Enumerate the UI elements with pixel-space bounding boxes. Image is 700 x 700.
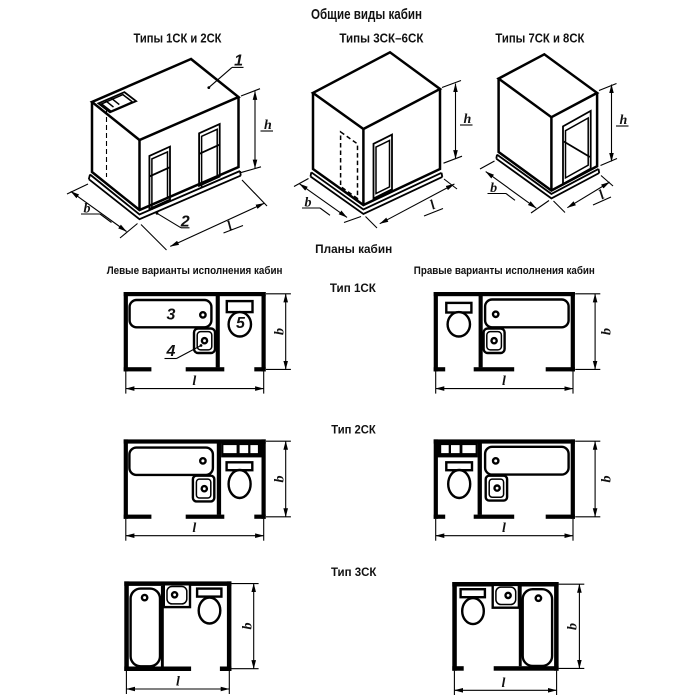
svg-text:b: b — [566, 623, 581, 630]
svg-text:Планы кабин: Планы кабин — [315, 244, 392, 256]
svg-text:b: b — [273, 476, 288, 483]
svg-text:b: b — [273, 328, 288, 335]
svg-text:1: 1 — [234, 52, 243, 69]
svg-text:l: l — [502, 374, 506, 389]
svg-text:b: b — [600, 476, 615, 483]
svg-text:Типы 7СК и 8СК: Типы 7СК и 8СК — [495, 31, 584, 46]
svg-text:Тип 1СК: Тип 1СК — [330, 281, 377, 295]
svg-text:4: 4 — [166, 343, 176, 360]
svg-text:l: l — [502, 676, 506, 691]
svg-text:l: l — [502, 521, 506, 536]
svg-text:Правые варианты исполнения каб: Правые варианты исполнения кабин — [414, 265, 595, 277]
svg-text:3: 3 — [167, 307, 176, 324]
svg-text:l: l — [192, 521, 196, 536]
svg-text:Типы 3СК–6СК: Типы 3СК–6СК — [339, 31, 423, 46]
svg-text:b: b — [241, 623, 256, 630]
svg-text:Левые варианты исполнения каби: Левые варианты исполнения кабин — [107, 265, 283, 277]
svg-text:Типы 1СК и 2СК: Типы 1СК и 2СК — [134, 31, 222, 46]
svg-text:Общие виды кабин: Общие виды кабин — [311, 6, 422, 23]
svg-text:b: b — [600, 328, 615, 335]
svg-text:Тип 3СК: Тип 3СК — [331, 565, 377, 579]
svg-text:l: l — [176, 675, 180, 690]
svg-text:l: l — [192, 374, 196, 389]
svg-text:Тип 2СК: Тип 2СК — [331, 423, 376, 437]
svg-text:5: 5 — [236, 315, 246, 332]
